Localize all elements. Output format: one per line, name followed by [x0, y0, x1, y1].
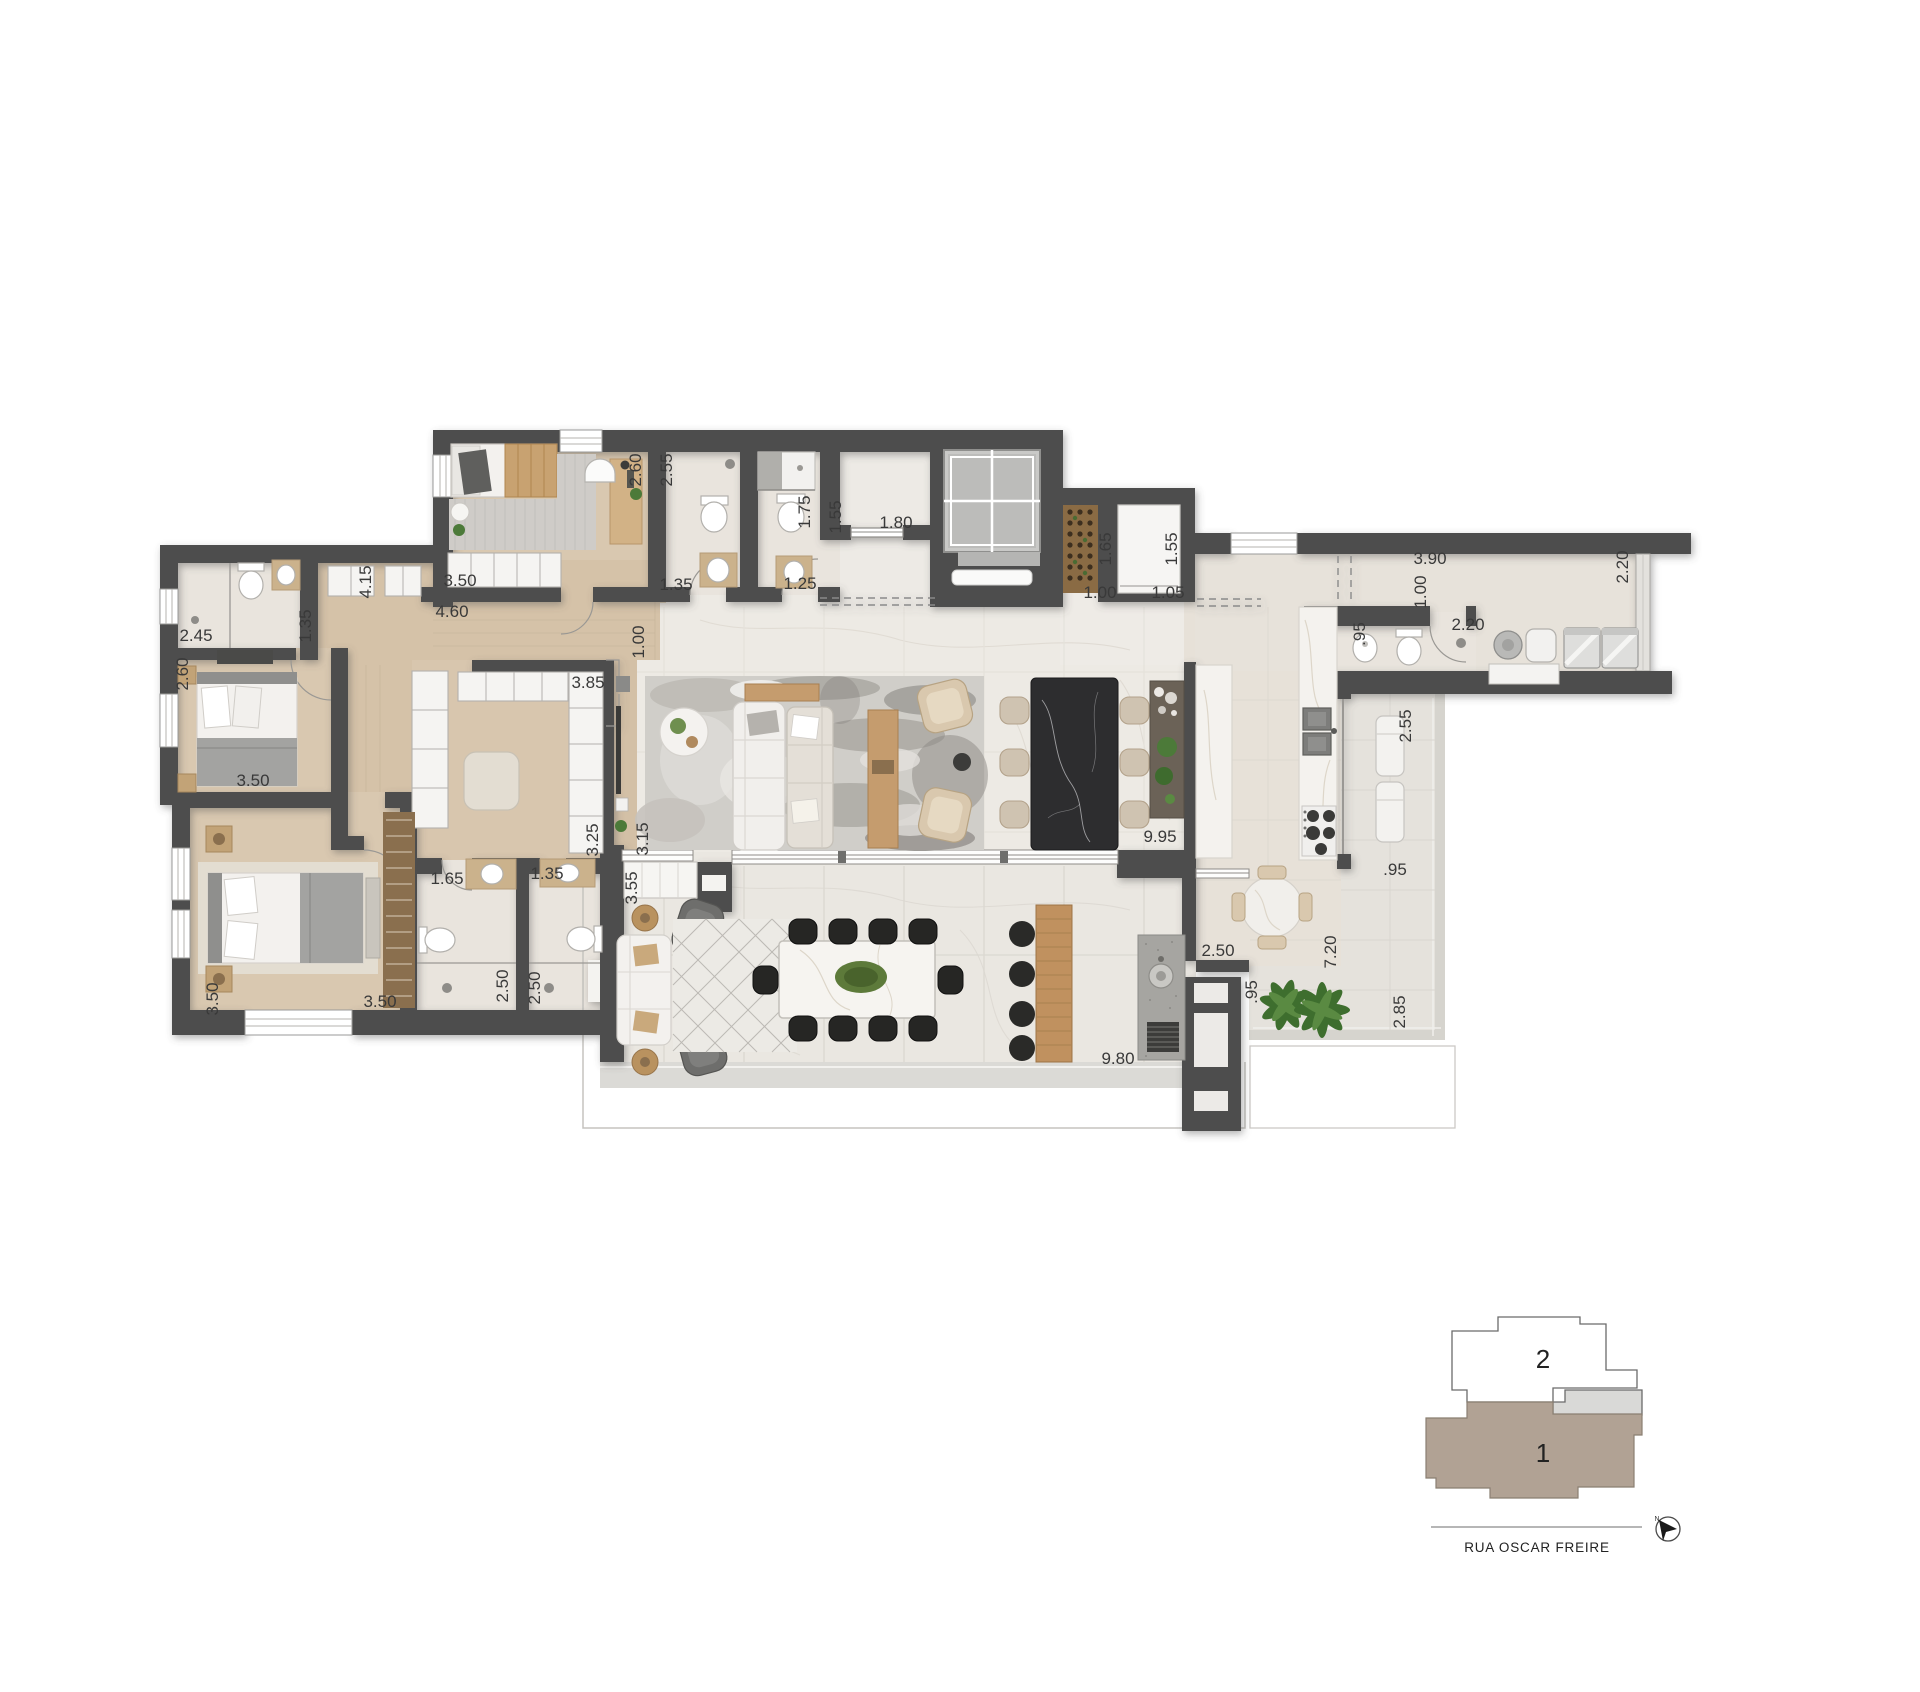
svg-text:.95: .95 [1242, 980, 1261, 1004]
svg-text:1.25: 1.25 [783, 574, 816, 593]
svg-text:2.55: 2.55 [1396, 709, 1415, 742]
svg-text:1.55: 1.55 [826, 500, 845, 533]
svg-text:9.80: 9.80 [1101, 1049, 1134, 1068]
svg-text:2: 2 [1536, 1344, 1550, 1374]
svg-text:2.20: 2.20 [1451, 615, 1484, 634]
svg-text:1.05: 1.05 [1151, 583, 1184, 602]
svg-text:.95: .95 [1383, 860, 1407, 879]
svg-text:1.00: 1.00 [1411, 575, 1430, 608]
svg-text:2.85: 2.85 [1390, 995, 1409, 1028]
svg-text:3.90: 3.90 [1413, 549, 1446, 568]
svg-text:4.60: 4.60 [435, 602, 468, 621]
svg-text:9.95: 9.95 [1143, 827, 1176, 846]
svg-text:1.75: 1.75 [795, 495, 814, 528]
svg-text:3.50: 3.50 [443, 571, 476, 590]
svg-text:3.50: 3.50 [236, 771, 269, 790]
svg-text:1: 1 [1536, 1438, 1550, 1468]
svg-text:RUA OSCAR FREIRE: RUA OSCAR FREIRE [1464, 1540, 1610, 1555]
svg-text:1.80: 1.80 [879, 513, 912, 532]
svg-text:1.35: 1.35 [659, 575, 692, 594]
svg-text:2.60: 2.60 [626, 453, 645, 486]
svg-text:2.45: 2.45 [179, 626, 212, 645]
svg-text:2.20: 2.20 [1613, 550, 1632, 583]
svg-text:1.00: 1.00 [629, 625, 648, 658]
svg-text:1.35: 1.35 [530, 864, 563, 883]
svg-text:1.65: 1.65 [430, 869, 463, 888]
svg-text:3.55: 3.55 [622, 871, 641, 904]
svg-text:7.20: 7.20 [1321, 935, 1340, 968]
svg-text:.95: .95 [1350, 622, 1369, 646]
svg-text:1.35: 1.35 [296, 609, 315, 642]
svg-text:3.50: 3.50 [203, 982, 222, 1015]
svg-text:2.50: 2.50 [1201, 941, 1234, 960]
svg-text:2.60: 2.60 [173, 657, 192, 690]
svg-text:3.25: 3.25 [583, 823, 602, 856]
svg-text:1.65: 1.65 [1096, 532, 1115, 565]
svg-text:4.15: 4.15 [356, 565, 375, 598]
svg-text:3.15: 3.15 [633, 822, 652, 855]
svg-text:2.55: 2.55 [657, 453, 676, 486]
svg-text:3.50: 3.50 [363, 992, 396, 1011]
svg-text:N: N [1654, 1516, 1659, 1523]
svg-text:1.00: 1.00 [1083, 583, 1116, 602]
svg-text:2.50: 2.50 [525, 971, 544, 1004]
svg-text:3.85: 3.85 [571, 673, 604, 692]
svg-text:2.50: 2.50 [493, 969, 512, 1002]
svg-text:1.55: 1.55 [1162, 532, 1181, 565]
